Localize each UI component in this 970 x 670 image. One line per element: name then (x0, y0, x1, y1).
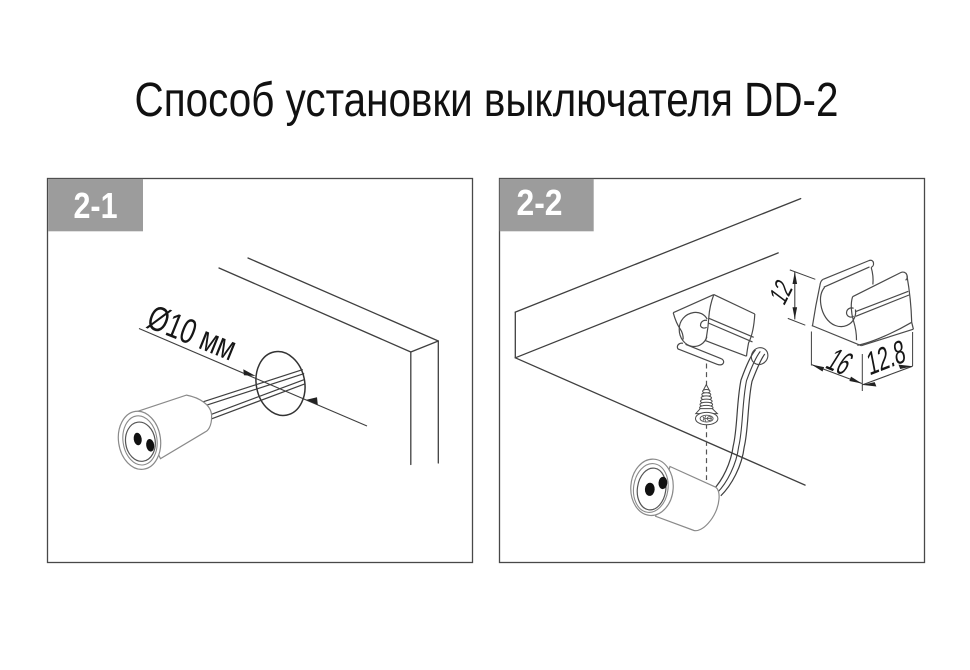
svg-text:2-1: 2-1 (74, 185, 118, 226)
svg-text:Способ установки выключателя D: Способ установки выключателя DD-2 (135, 74, 839, 127)
svg-text:2-2: 2-2 (517, 182, 563, 223)
